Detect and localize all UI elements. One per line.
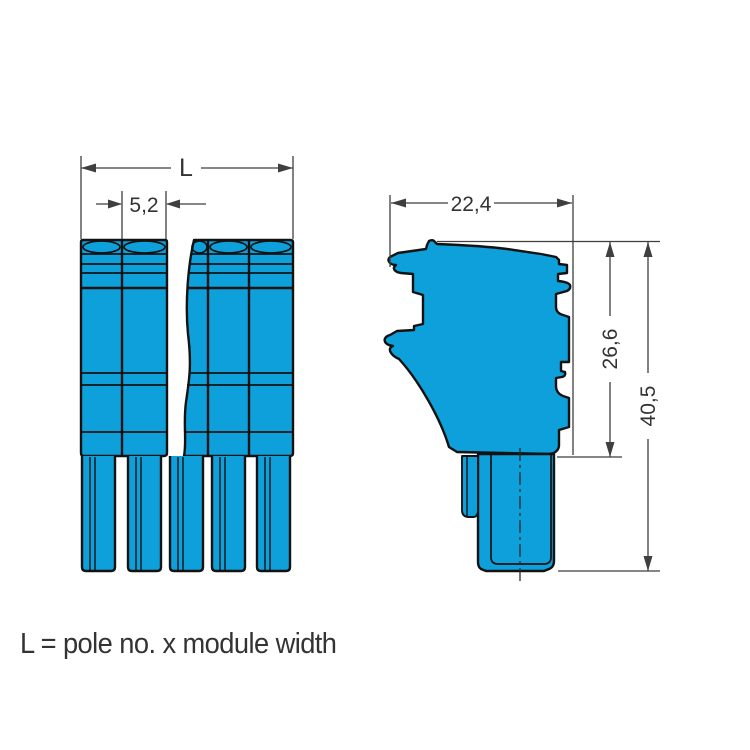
front-view-dimension-total-width: L (81, 154, 293, 239)
arrowhead-left (391, 199, 406, 208)
side-view-dimension-total-height: 40,5 (637, 242, 660, 571)
dim-label-L: L (179, 154, 193, 182)
pin (212, 456, 245, 571)
technical-drawing-page: L 5,2 (0, 0, 750, 750)
dim-label-depth: 22,4 (451, 193, 492, 216)
dim-label-housing-height: 26,6 (599, 329, 622, 370)
dim-label-total-height: 40,5 (637, 386, 660, 427)
arrowhead-right (278, 164, 293, 173)
front-view: L 5,2 (81, 154, 293, 571)
formula-caption: L = pole no. x module width (20, 628, 336, 661)
arrowhead-left (81, 164, 96, 173)
dim-label-module-width: 5,2 (129, 194, 158, 217)
arrowhead-right (557, 199, 572, 208)
side-view-dimension-housing-height: 26,6 (599, 242, 622, 457)
arrowhead-left-pointing (166, 200, 180, 209)
arrowhead-right-pointing (108, 200, 122, 209)
arrowhead-down (606, 442, 615, 457)
front-view-dimension-module-width: 5,2 (96, 191, 206, 239)
pin (128, 456, 161, 571)
pin (257, 456, 290, 571)
arrowhead-down (644, 556, 653, 571)
side-plug-pin (478, 454, 554, 571)
side-view: 22,4 26,6 40,5 (385, 193, 660, 582)
front-view-pins (82, 456, 290, 571)
arrowhead-up (644, 242, 653, 257)
arrowhead-up (606, 242, 615, 257)
pin (82, 456, 115, 571)
pin (170, 456, 203, 571)
side-latch-tab (462, 456, 478, 517)
side-housing-profile (385, 240, 571, 454)
